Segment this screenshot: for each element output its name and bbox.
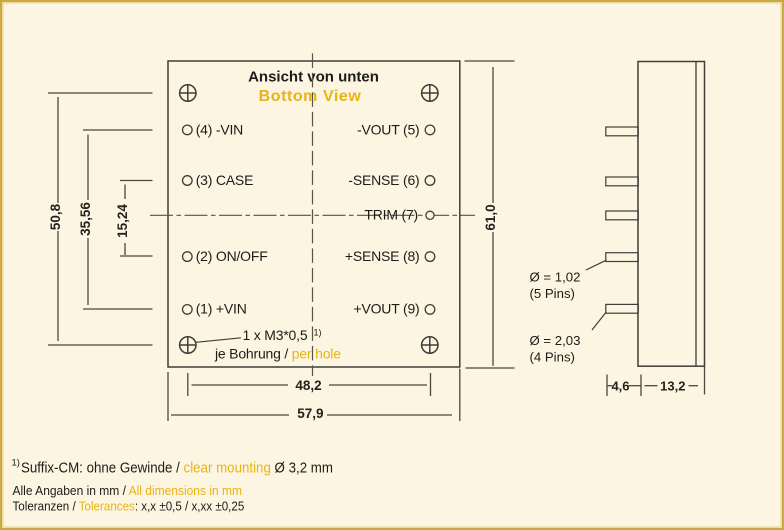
svg-text:Ansicht von unten: Ansicht von unten bbox=[248, 69, 379, 86]
svg-text:35,56: 35,56 bbox=[78, 202, 93, 236]
svg-text:-VOUT (5): -VOUT (5) bbox=[357, 121, 420, 137]
svg-text:1): 1) bbox=[314, 328, 322, 338]
svg-text:4,6: 4,6 bbox=[611, 378, 629, 393]
svg-text:je Bohrung / per hole: je Bohrung / per hole bbox=[214, 346, 341, 362]
svg-text:(5 Pins): (5 Pins) bbox=[530, 286, 575, 301]
svg-text:Bottom View: Bottom View bbox=[259, 88, 362, 105]
svg-text:(4) -VIN: (4) -VIN bbox=[196, 121, 243, 137]
svg-text:+VOUT (9): +VOUT (9) bbox=[353, 301, 419, 317]
svg-text:1): 1) bbox=[12, 458, 20, 469]
svg-text:Alle Angaben in mm / All dimen: Alle Angaben in mm / All dimensions in m… bbox=[13, 483, 243, 498]
svg-text:Suffix-CM: ohne Gewinde / clea: Suffix-CM: ohne Gewinde / clear mounting… bbox=[21, 461, 333, 477]
svg-text:(4 Pins): (4 Pins) bbox=[530, 350, 575, 365]
svg-text:1 x M3*0,5: 1 x M3*0,5 bbox=[243, 327, 308, 343]
svg-text:TRIM (7): TRIM (7) bbox=[364, 207, 418, 223]
svg-text:48,2: 48,2 bbox=[295, 378, 321, 393]
svg-text:50,8: 50,8 bbox=[48, 203, 63, 230]
svg-text:Toleranzen / Tolerances: x,x ±: Toleranzen / Tolerances: x,x ±0,5 / x,xx… bbox=[13, 498, 245, 513]
svg-text:Ø = 1,02: Ø = 1,02 bbox=[530, 270, 581, 285]
svg-text:(3) CASE: (3) CASE bbox=[196, 172, 254, 188]
svg-text:Ø = 2,03: Ø = 2,03 bbox=[530, 333, 581, 348]
svg-text:-SENSE (6): -SENSE (6) bbox=[348, 172, 419, 188]
svg-text:(1) +VIN: (1) +VIN bbox=[196, 301, 247, 317]
svg-text:(2) ON/OFF: (2) ON/OFF bbox=[196, 248, 268, 264]
svg-text:15,24: 15,24 bbox=[115, 204, 130, 238]
svg-text:61,0: 61,0 bbox=[483, 204, 498, 230]
svg-text:13,2: 13,2 bbox=[660, 378, 685, 393]
svg-text:57,9: 57,9 bbox=[297, 406, 323, 421]
svg-text:+SENSE (8): +SENSE (8) bbox=[345, 248, 420, 264]
